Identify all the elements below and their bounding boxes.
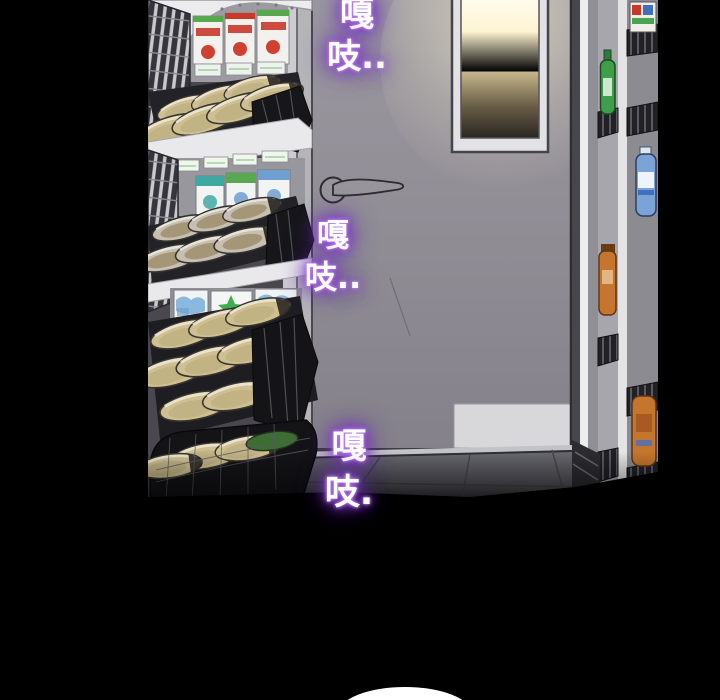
sfx-char: 嘎 [312, 424, 386, 470]
comic-page: 嘎 吱.. 嘎 吱.. 嘎 吱. [0, 0, 720, 700]
comic-panel [148, 0, 658, 500]
sfx-char: 嘎 [318, 0, 396, 36]
sfx-creak-top: 嘎 吱.. [318, 0, 396, 78]
shelf-ledge [598, 334, 618, 366]
shelf-rail [618, 0, 627, 494]
speech-bubble-top [338, 687, 472, 700]
right-shelf [572, 0, 658, 500]
sfx-char: 吱.. [318, 36, 396, 78]
price-tags [195, 62, 285, 76]
scene-art [148, 0, 658, 500]
sfx-char: 吱. [312, 470, 386, 516]
shelf-rail [580, 0, 588, 478]
door-window-glass [461, 0, 539, 138]
shelf-ledge [627, 102, 658, 136]
sfx-creak-bottom: 嘎 吱. [312, 424, 386, 516]
sfx-creak-middle: 嘎 吱.. [292, 214, 374, 298]
snack-box [630, 2, 656, 32]
water-bottle [636, 147, 656, 216]
sfx-char: 吱.. [292, 256, 374, 298]
product-boxes-red [193, 10, 289, 64]
sfx-char: 嘎 [292, 214, 374, 256]
door-kick-plate [454, 404, 572, 448]
orange-bottle [599, 244, 616, 315]
